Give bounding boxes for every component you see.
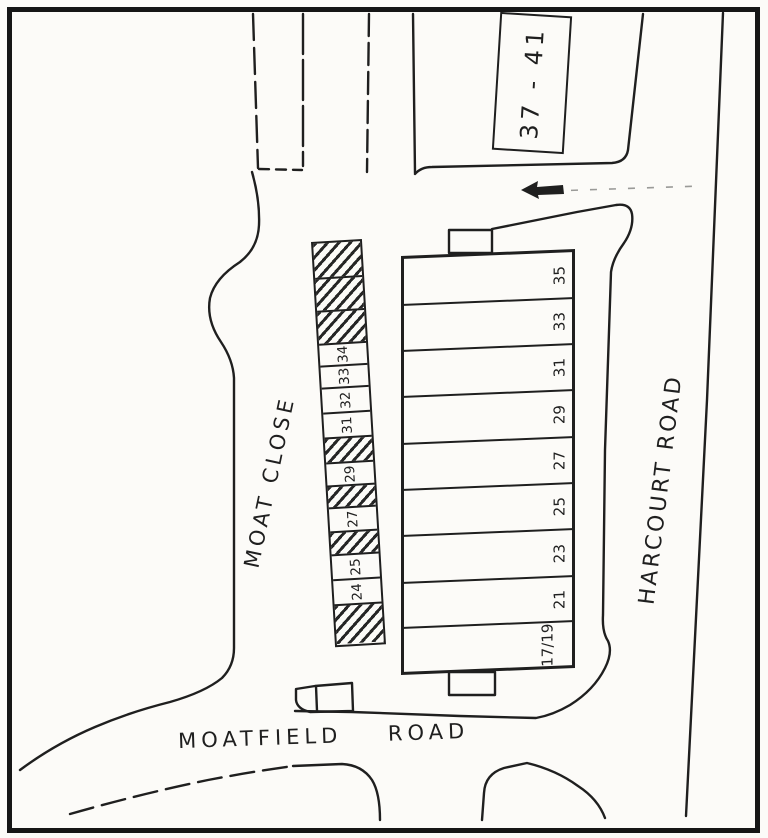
building-37-41: 37 - 41 [492,12,572,154]
terrace-plot-row: 29 [404,389,572,443]
strip-cell-hatched [317,308,366,344]
plot-number-label: 35 [550,265,568,285]
road-linework [0,0,768,838]
plot-number-label: 29 [550,404,568,424]
plot-number-label: 32 [337,391,354,409]
plot-number-label: 31 [550,358,568,378]
plot-number-label: 29 [342,465,359,483]
terrace-plot-row: 17/19 [404,620,572,672]
plot-number-label: 27 [345,510,362,528]
terrace-plot-row: 31 [404,343,572,396]
terrace-plot-row: 33 [404,297,572,350]
building-37-41-label: 37 - 41 [515,26,550,140]
terrace-plot-row: 23 [404,528,572,582]
terrace-plot-row: 27 [404,436,572,489]
terrace-bottom-porch [449,672,495,695]
road-edge-top-left-strip-west [253,14,258,168]
strip-cell-numbered: 33 [320,363,368,388]
strip-cell-hatched [335,601,384,644]
terrace-top-porch [449,230,492,253]
plot-number-label: 25 [347,557,364,575]
strip-cell-numbered: 24 [333,576,381,604]
strip-cell-hatched [315,275,364,311]
strip-cell-hatched [313,241,362,278]
road-edge-moatfield-south [70,766,293,814]
plot-number-label: 27 [550,451,568,471]
strip-cell-hatched [325,435,373,463]
terrace-block: 35 33 31 29 27 25 23 21 17/19 [401,249,575,675]
strip-cell-numbered: 31 [323,410,371,438]
terrace-plot-row: 25 [404,482,572,535]
strip-cell-hatched [327,483,375,508]
road-edge-top-left-strip-end [259,169,302,170]
road-edge-harcourt-east [686,13,723,816]
plot-number-label: 25 [550,497,568,517]
plot-number-label: 33 [550,312,568,332]
plot-number-label: 33 [336,367,353,385]
site-plan: 37 - 41 34 33 32 31 29 27 25 24 35 33 31… [0,0,768,838]
strip-cell-numbered: 34 [319,341,367,366]
plot-number-label: 23 [550,543,568,563]
plot-number-label: 34 [335,345,352,363]
strip-cell-hatched [330,529,378,555]
plot-number-label: 21 [550,589,568,609]
plot-number-label: 17/19 [538,623,556,667]
strip-cell-numbered: 27 [329,505,377,532]
strip-cell-numbered: 25 [332,552,380,580]
kerb-corner-south-right [482,763,605,820]
road-edge-top-mid-strip-west [367,14,369,172]
kerb-corner-south-left [293,764,380,820]
terrace-plot-row: 21 [404,575,572,627]
road-centreline-dashes [552,186,702,191]
plot-number-label: 24 [349,582,366,600]
road-edge-moat-close-west [20,172,259,770]
one-way-arrow-icon [521,181,564,199]
strip-cell-numbered: 32 [322,385,370,413]
road-edge-top-mid-strip-east [413,14,415,173]
plot-number-label: 31 [339,416,356,434]
strip-cell-numbered: 29 [326,460,374,486]
corner-structure-outline [296,683,353,712]
terrace-plot-row: 35 [404,252,572,304]
